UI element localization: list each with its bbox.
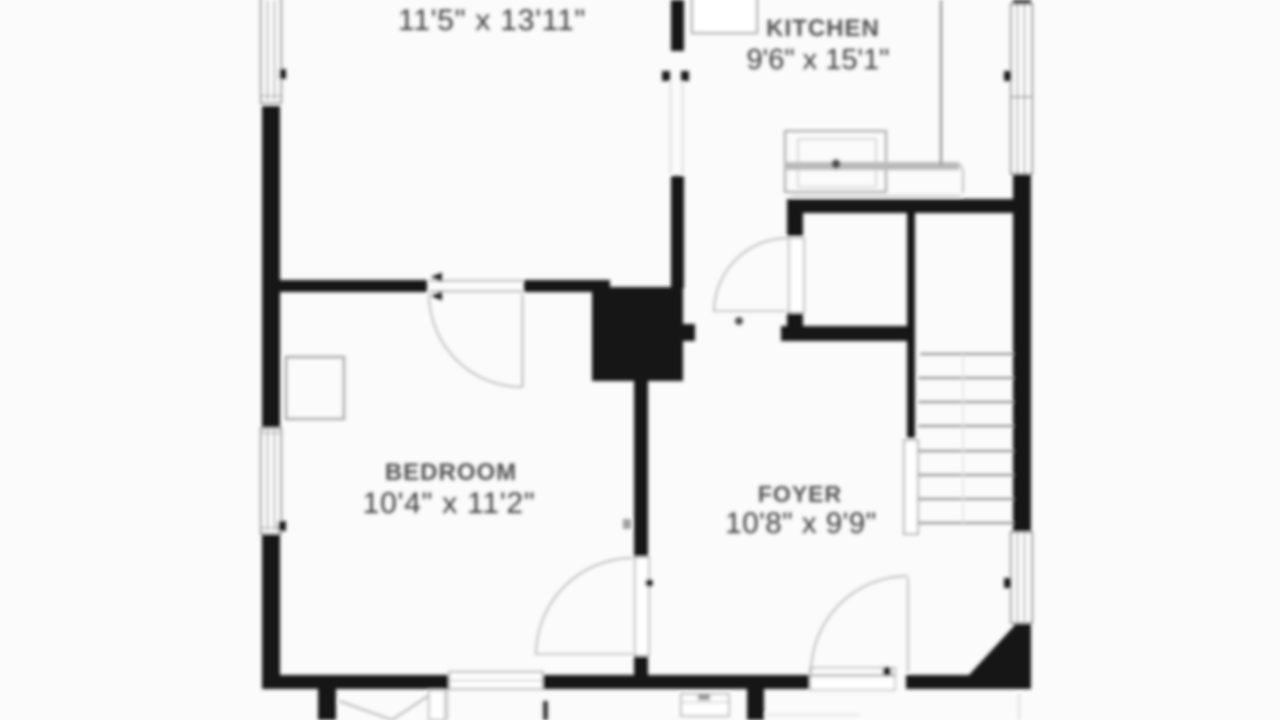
- svg-text:BEDROOM: BEDROOM: [385, 459, 517, 486]
- svg-text:10'8" x 9'9": 10'8" x 9'9": [725, 507, 876, 540]
- svg-text:KITCHEN: KITCHEN: [766, 15, 880, 42]
- svg-text:10'4" x 11'2": 10'4" x 11'2": [363, 487, 536, 520]
- svg-text:9'6" x 15'1": 9'6" x 15'1": [747, 44, 890, 76]
- svg-text:11'5" x 13'11": 11'5" x 13'11": [398, 4, 586, 37]
- svg-text:FOYER: FOYER: [758, 481, 842, 507]
